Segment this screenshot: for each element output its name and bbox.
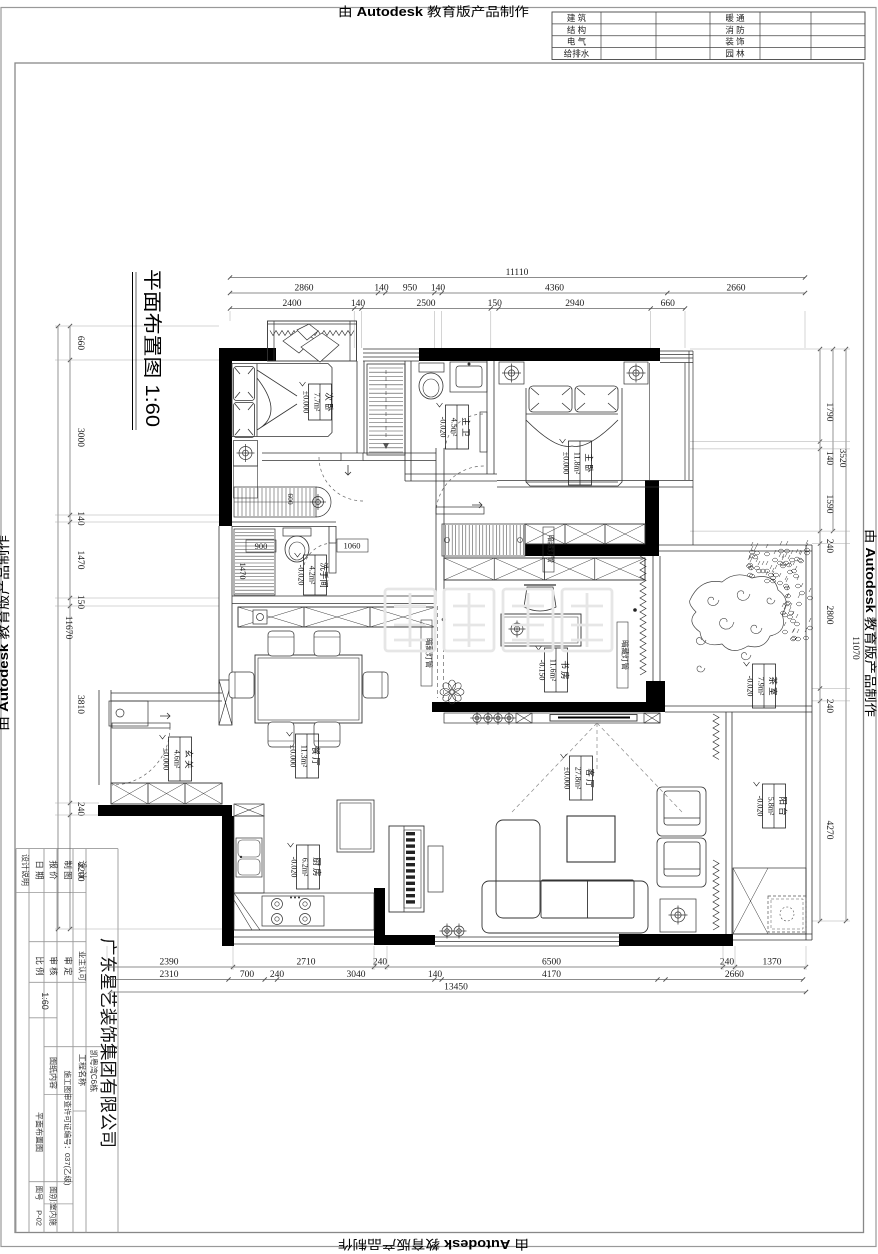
- svg-text:1370: 1370: [763, 958, 782, 968]
- svg-text:业主认可: 业主认可: [78, 951, 88, 981]
- svg-text:平面布置图 1:60: 平面布置图 1:60: [141, 269, 163, 427]
- svg-text:-0.020: -0.020: [297, 565, 306, 586]
- svg-text:2660: 2660: [725, 970, 744, 980]
- svg-text:240: 240: [373, 958, 388, 968]
- svg-text:2500: 2500: [417, 299, 436, 309]
- svg-text:图号: 图号: [35, 1186, 44, 1201]
- svg-text:-0.020: -0.020: [746, 676, 755, 697]
- svg-text:140: 140: [824, 451, 834, 466]
- svg-text:5.8m²: 5.8m²: [766, 797, 775, 816]
- svg-text:报 价: 报 价: [49, 860, 59, 880]
- svg-text:±0.000: ±0.000: [563, 767, 572, 789]
- svg-text:±0.000: ±0.000: [562, 452, 571, 474]
- svg-text:施工图审查许可证编号：037(乙级): 施工图审查许可证编号：037(乙级): [63, 1070, 73, 1186]
- svg-text:240: 240: [270, 970, 285, 980]
- svg-text:餐 厅: 餐 厅: [311, 746, 321, 766]
- svg-text:2660: 2660: [727, 284, 746, 294]
- svg-text:客 厅: 客 厅: [585, 768, 595, 788]
- svg-text:-0.150: -0.150: [538, 660, 547, 681]
- svg-text:主 卧: 主 卧: [584, 453, 594, 473]
- svg-text:凯粤湾C6栋: 凯粤湾C6栋: [89, 1050, 99, 1092]
- svg-text:150: 150: [75, 595, 85, 610]
- svg-text:240: 240: [720, 958, 735, 968]
- svg-text:27.8m²: 27.8m²: [573, 767, 582, 790]
- svg-text:140: 140: [351, 299, 366, 309]
- svg-text:建 筑: 建 筑: [567, 13, 587, 23]
- svg-text:1790: 1790: [824, 403, 834, 422]
- svg-text:工程名称: 工程名称: [78, 1054, 88, 1086]
- svg-text:茶 室: 茶 室: [768, 676, 778, 696]
- svg-text:审 核: 审 核: [49, 956, 59, 976]
- svg-text:消 防: 消 防: [725, 25, 745, 35]
- svg-text:950: 950: [403, 284, 418, 294]
- svg-text:6.2m²: 6.2m²: [300, 858, 309, 877]
- svg-text:140: 140: [75, 511, 85, 526]
- svg-text:由 Autodesk 教育版产品制作: 由 Autodesk 教育版产品制作: [0, 534, 11, 731]
- svg-text:700: 700: [240, 970, 255, 980]
- svg-text:240: 240: [75, 802, 85, 817]
- svg-text:7.7m²: 7.7m²: [312, 393, 321, 412]
- svg-text:140: 140: [374, 284, 389, 294]
- svg-text:4170: 4170: [542, 970, 561, 980]
- svg-text:3520: 3520: [837, 449, 847, 468]
- svg-text:制 图: 制 图: [63, 860, 73, 879]
- svg-text:4270: 4270: [824, 821, 834, 840]
- svg-text:结 构: 结 构: [567, 25, 586, 35]
- svg-text:±0.000: ±0.000: [289, 745, 298, 767]
- svg-text:4.6m²: 4.6m²: [172, 750, 181, 769]
- svg-text:6500: 6500: [542, 958, 561, 968]
- svg-text:3040: 3040: [347, 970, 366, 980]
- svg-text:暖 通: 暖 通: [725, 13, 745, 23]
- svg-text:11670: 11670: [63, 616, 73, 640]
- svg-text:2310: 2310: [160, 970, 179, 980]
- svg-text:1590: 1590: [824, 495, 834, 514]
- svg-text:2400: 2400: [283, 299, 302, 309]
- svg-text:2200: 2200: [75, 863, 85, 882]
- svg-text:11.6m²: 11.6m²: [548, 659, 557, 682]
- svg-text:3810: 3810: [75, 695, 85, 714]
- svg-text:厨 房: 厨 房: [312, 857, 322, 876]
- svg-text:玄 关: 玄 关: [184, 749, 194, 769]
- svg-text:140: 140: [431, 284, 446, 294]
- svg-text:660: 660: [75, 336, 85, 351]
- svg-text:平面布置图: 平面布置图: [35, 1112, 45, 1152]
- svg-text:广东星艺装饰集团有限公司: 广东星艺装饰集团有限公司: [98, 938, 118, 1148]
- svg-text:11110: 11110: [506, 268, 529, 278]
- svg-text:11.8m²: 11.8m²: [572, 452, 581, 475]
- svg-text:3000: 3000: [75, 428, 85, 447]
- svg-text:240: 240: [824, 539, 834, 554]
- svg-text:主 卫: 主 卫: [461, 417, 471, 437]
- svg-text:2800: 2800: [824, 606, 834, 625]
- svg-text:2390: 2390: [160, 958, 179, 968]
- svg-text:13450: 13450: [444, 983, 468, 993]
- svg-text:-0.020: -0.020: [439, 417, 448, 438]
- svg-text:日 期: 日 期: [35, 860, 45, 879]
- svg-text:次 卧: 次 卧: [324, 392, 334, 412]
- svg-text:P-02: P-02: [35, 1210, 44, 1226]
- svg-text:900: 900: [255, 541, 268, 551]
- svg-text:设计说明: 设计说明: [21, 854, 31, 886]
- svg-text:11.3m²: 11.3m²: [299, 745, 308, 768]
- svg-text:±0.000: ±0.000: [162, 748, 171, 770]
- svg-text:-0.020: -0.020: [756, 796, 765, 817]
- svg-text:暗藏灯管: 暗藏灯管: [547, 535, 556, 563]
- svg-text:4360: 4360: [545, 284, 564, 294]
- svg-text:4.2m²: 4.2m²: [307, 566, 316, 585]
- svg-text:1470: 1470: [238, 563, 248, 580]
- svg-text:洗手间: 洗手间: [319, 562, 329, 588]
- svg-text:660: 660: [661, 299, 676, 309]
- svg-text:暗藏灯管: 暗藏灯管: [621, 640, 631, 670]
- svg-text:600: 600: [286, 493, 295, 505]
- svg-text:装 饰: 装 饰: [725, 37, 745, 47]
- svg-text:园 林: 园 林: [725, 49, 745, 59]
- svg-text:电 气: 电 气: [567, 37, 587, 47]
- svg-text:-0.020: -0.020: [290, 857, 299, 878]
- svg-text:图别:室内施: 图别:室内施: [49, 1186, 59, 1226]
- svg-text:4.5m²: 4.5m²: [449, 418, 458, 437]
- svg-text:2710: 2710: [297, 958, 316, 968]
- svg-text:7.9m²: 7.9m²: [756, 677, 765, 696]
- svg-text:由 Autodesk 教育版产品制作: 由 Autodesk 教育版产品制作: [863, 529, 878, 718]
- svg-text:±0.000: ±0.000: [302, 391, 311, 413]
- svg-text:阳 台: 阳 台: [778, 796, 788, 815]
- svg-text:由 Autodesk 教育版产品制作: 由 Autodesk 教育版产品制作: [337, 1237, 529, 1252]
- svg-text:11070: 11070: [850, 636, 860, 660]
- svg-text:1060: 1060: [344, 541, 361, 551]
- svg-text:书 房: 书 房: [560, 660, 570, 679]
- svg-text:比 例: 比 例: [35, 956, 45, 975]
- svg-text:暗藏灯管: 暗藏灯管: [425, 638, 435, 668]
- svg-text:由 Autodesk 教育版产品制作: 由 Autodesk 教育版产品制作: [338, 4, 530, 19]
- svg-text:1470: 1470: [75, 551, 85, 570]
- svg-text:1:60: 1:60: [40, 992, 50, 1010]
- svg-text:审 定: 审 定: [63, 956, 73, 976]
- svg-text:140: 140: [428, 970, 443, 980]
- svg-text:150: 150: [488, 299, 503, 309]
- svg-text:给排水: 给排水: [564, 49, 590, 59]
- svg-text:2860: 2860: [295, 284, 314, 294]
- svg-text:2940: 2940: [565, 299, 584, 309]
- svg-text:图纸内容: 图纸内容: [49, 1057, 59, 1089]
